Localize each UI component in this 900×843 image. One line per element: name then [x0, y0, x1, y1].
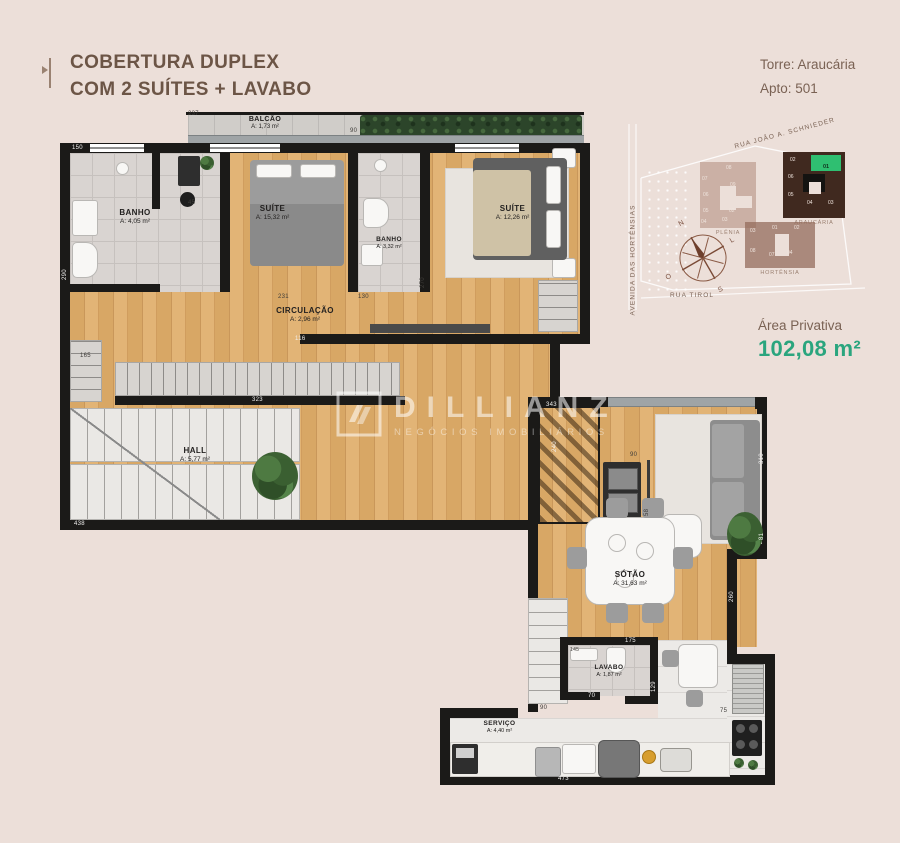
closet-wardrobe — [70, 340, 102, 402]
room-area: A: 4,40 m² — [452, 728, 547, 734]
room-name: SUÍTE — [465, 204, 560, 213]
room-area: A: 15,32 m² — [225, 214, 320, 221]
dimension-label: 45 — [188, 200, 195, 206]
room-label-suite2: SUÍTE A: 12,26 m² — [465, 204, 560, 221]
room-area: A: 12,26 m² — [465, 214, 560, 221]
tower-label: Torre: Araucária — [760, 53, 855, 77]
bistro-table — [678, 644, 718, 688]
page-title-line1: COBERTURA DUPLEX — [70, 50, 312, 77]
watermark-text: DILLIANZ NEGÓCIOS IMOBILIÁRIOS — [394, 391, 619, 438]
plant — [748, 760, 758, 770]
unit-number: 02 — [790, 157, 796, 163]
wall — [348, 153, 358, 292]
wall — [560, 637, 658, 645]
room-area: A: 3,32 m² — [359, 244, 419, 250]
wall — [220, 153, 230, 292]
watermark-tagline: NEGÓCIOS IMOBILIÁRIOS — [394, 427, 619, 438]
window — [210, 144, 280, 152]
room-name: BANHO — [90, 208, 180, 217]
room-area: A: 1,87 m² — [570, 672, 648, 678]
floorplan-page: COBERTURA DUPLEX COM 2 SUÍTES + LAVABO T… — [0, 0, 900, 843]
dimension-label: 175 — [625, 638, 636, 644]
wall — [300, 334, 590, 344]
dimension-label: 473 — [558, 776, 569, 782]
dining-table — [585, 517, 675, 605]
room-name: LAVABO — [570, 664, 648, 671]
room-area: A: 1,73 m² — [210, 124, 320, 130]
room-label-balcao: BALCÃO A: 1,73 m² — [210, 116, 320, 130]
unit-number: 06 — [703, 192, 709, 198]
plant — [200, 156, 214, 170]
dimension-label: 90 — [630, 452, 637, 458]
washing-machine — [562, 744, 596, 774]
shower-icon — [374, 159, 387, 172]
dimension-label: 116 — [295, 336, 305, 342]
wall — [727, 549, 737, 662]
street-label-left: AVENIDA DAS HORTÊNSIAS — [630, 206, 637, 316]
room-name: SERVIÇO — [452, 720, 547, 727]
dimension-label: 270 — [420, 277, 426, 288]
wall — [440, 708, 518, 718]
unit-number: 01 — [772, 225, 778, 231]
room-area: A: 5,77 m² — [140, 456, 250, 463]
unit-number: 05 — [788, 192, 794, 198]
title-accent-line — [49, 58, 51, 88]
dimension-label: 70 — [588, 693, 595, 699]
dimension-label: 231 — [278, 294, 289, 300]
window — [455, 144, 519, 152]
apto-label: Apto: 501 — [760, 77, 855, 101]
dining-chair — [642, 603, 664, 623]
cabinet-front — [456, 748, 474, 758]
room-name: HALL — [140, 446, 250, 455]
plate — [636, 542, 654, 560]
window — [90, 144, 144, 152]
room-label-servico: SERVIÇO A: 4,40 m² — [452, 720, 547, 734]
wall — [60, 143, 70, 530]
pillow — [546, 166, 561, 204]
room-label-circulacao: CIRCULAÇÃO A: 2,96 m² — [245, 306, 365, 323]
plate — [608, 534, 626, 552]
unit-number: 09 — [730, 182, 736, 188]
kitchen-sink — [660, 748, 692, 772]
unit-number: 03 — [750, 228, 756, 234]
wall — [440, 708, 450, 785]
wall — [580, 143, 590, 334]
dimension-label: 438 — [74, 521, 85, 527]
dining-chair — [567, 547, 587, 569]
desk — [178, 156, 200, 186]
dining-chair — [606, 603, 628, 623]
unit-info: Torre: Araucária Apto: 501 — [760, 53, 855, 100]
room-label-hall: HALL A: 5,77 m² — [140, 446, 250, 463]
room-label-suite1: SUÍTE A: 15,32 m² — [225, 204, 320, 221]
wall — [765, 654, 775, 785]
room-name: BALCÃO — [210, 116, 320, 123]
unit-number: 07 — [769, 252, 775, 258]
dimension-label: 290 — [62, 269, 68, 280]
plant — [734, 758, 744, 768]
dimension-label: 130 — [358, 294, 369, 300]
dimension-label: 165 — [80, 353, 91, 359]
unit-number: 03 — [828, 200, 834, 206]
room-area: A: 4,05 m² — [90, 218, 180, 225]
unit-number: 04 — [787, 250, 793, 256]
grill-counter — [732, 664, 764, 714]
brand-logo-icon — [336, 391, 382, 437]
private-area-label: Área Privativa — [758, 318, 842, 333]
dining-chair — [673, 547, 693, 569]
building-label-hortensia: HORTÊNSIA — [745, 270, 815, 276]
wall — [650, 637, 658, 704]
room-name: BANHO — [359, 236, 419, 243]
unit-number: 08 — [750, 248, 756, 254]
unit-number: 06 — [788, 174, 794, 180]
washer — [535, 747, 561, 777]
room-area: A: 2,96 m² — [245, 316, 365, 323]
page-title: COBERTURA DUPLEX COM 2 SUÍTES + LAVABO — [70, 50, 312, 103]
unit-number: 04 — [807, 200, 813, 206]
unit-number: 07 — [702, 176, 708, 182]
wall — [560, 637, 568, 700]
room-area: A: 31,63 m² — [580, 580, 680, 587]
room-label-banho1: BANHO A: 4,05 m² — [90, 208, 180, 225]
refrigerator — [598, 740, 640, 778]
burner — [749, 724, 758, 733]
plant — [252, 452, 298, 500]
toilet — [363, 198, 389, 228]
wall — [152, 153, 160, 209]
unit-number: 02 — [729, 208, 735, 214]
unit-number: 08 — [726, 165, 732, 171]
burner — [749, 740, 758, 749]
chair — [662, 650, 679, 667]
wardrobe — [538, 280, 578, 332]
unit-number: 02 — [794, 225, 800, 231]
room-name: SÓTÃO — [580, 570, 680, 579]
burner — [736, 724, 745, 733]
dimension-label: 90 — [540, 705, 547, 711]
unit-number-highlighted: 01 — [823, 164, 829, 170]
dimension-label: 90 — [350, 128, 357, 134]
sideboard — [370, 324, 490, 333]
dimension-label: 75 — [720, 708, 727, 714]
dimension-label: 145 — [570, 647, 579, 653]
dimension-label: 58 — [644, 509, 650, 516]
building-courtyard — [809, 182, 821, 194]
wall — [420, 153, 430, 292]
wall — [625, 696, 658, 704]
building-courtyard — [736, 196, 752, 208]
dimension-label: 129 — [651, 681, 657, 692]
building-araucaria: 01 02 06 05 04 03 — [783, 152, 845, 218]
dining-chair — [606, 498, 628, 518]
room-label-banho2: BANHO A: 3,32 m² — [359, 236, 419, 250]
wall — [70, 284, 160, 292]
building-courtyard — [720, 186, 736, 210]
room-name: CIRCULAÇÃO — [245, 306, 365, 315]
building-hortensia: 03 01 02 08 07 04 — [745, 222, 815, 268]
watermark: DILLIANZ NEGÓCIOS IMOBILIÁRIOS — [336, 391, 656, 449]
oven — [608, 468, 638, 490]
shower-icon — [116, 162, 129, 175]
floor-plan-lower: SÓTÃO A: 31,63 m² LAVABO A: 1,87 m² SERV… — [440, 392, 870, 798]
room-name: SUÍTE — [225, 204, 320, 213]
watermark-brand: DILLIANZ — [394, 391, 619, 424]
sofa-cushion — [712, 424, 744, 478]
dimension-label: 260 — [729, 591, 735, 602]
wall — [186, 112, 584, 115]
room-label-lavabo: LAVABO A: 1,87 m² — [570, 664, 648, 678]
toilet — [72, 242, 98, 278]
highlighted-unit: 01 — [811, 155, 841, 171]
dimension-label: 310 — [759, 453, 765, 464]
room-label-sotao: SÓTÃO A: 31,63 m² — [580, 570, 680, 587]
burner — [736, 740, 745, 749]
title-accent-arrow-icon — [42, 66, 48, 74]
dimension-label: 150 — [72, 145, 83, 151]
pillow — [256, 164, 292, 178]
plant — [727, 512, 763, 556]
fruit-bowl — [642, 750, 656, 764]
dimension-label: 323 — [252, 397, 263, 403]
dimension-label: 237 — [188, 111, 199, 117]
stair-direction-line — [70, 408, 220, 520]
page-title-line2: COM 2 SUÍTES + LAVABO — [70, 77, 312, 104]
dimension-label: 81 — [759, 533, 765, 540]
chair — [686, 690, 703, 707]
private-area-value: 102,08 m² — [758, 336, 861, 362]
nightstand — [552, 258, 576, 278]
site-map: RUA JOÃO A. SCHNIEDER AVENIDA DAS HORTÊN… — [615, 116, 893, 314]
pillow — [300, 164, 336, 178]
